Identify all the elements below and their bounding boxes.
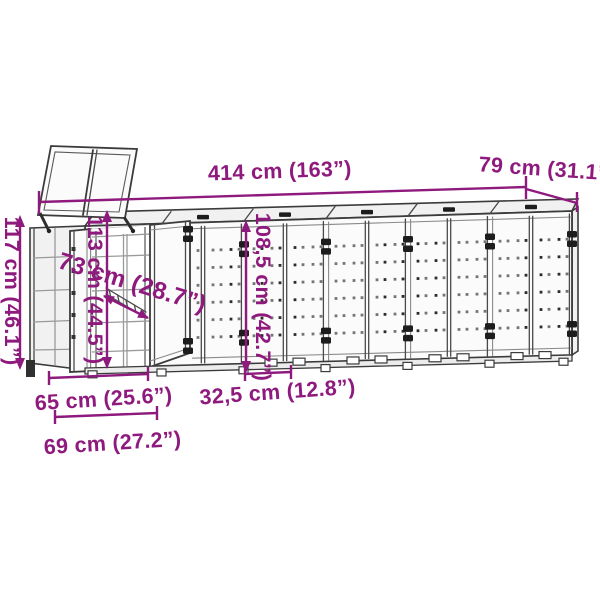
perforation-dot	[384, 296, 387, 299]
perforation-dot	[443, 276, 446, 279]
dim-label-depth: 79 cm (31.1”)	[478, 152, 600, 186]
perforation-dot	[220, 266, 223, 269]
perforation-dot	[484, 240, 487, 243]
perforation-dot	[294, 316, 297, 319]
perforation-dot	[484, 258, 487, 261]
perforation-dot	[343, 262, 346, 265]
perforation-dot	[312, 280, 315, 283]
perforation-dot	[525, 309, 528, 312]
perforation-dot	[312, 263, 315, 266]
perforation-dot	[212, 336, 215, 339]
perforation-dot	[435, 242, 438, 245]
perforation-dot	[466, 293, 469, 296]
perforation-dot	[312, 333, 315, 336]
perforation-dot	[230, 318, 233, 321]
perforation-dot	[230, 283, 233, 286]
perforation-dot	[279, 264, 282, 267]
hinge-block	[239, 330, 249, 337]
perforation-dot	[443, 259, 446, 262]
dim-door-width: 32,5 cm (12.8”)	[199, 365, 357, 409]
perforation-dot	[376, 261, 379, 264]
perforation-dot	[230, 248, 233, 251]
hinge-block	[403, 335, 413, 342]
hinge-block	[403, 325, 413, 332]
perforation-dot	[212, 266, 215, 269]
perforation-dot	[499, 327, 502, 330]
perforation-dot	[353, 314, 356, 317]
dim-total-height: 117 cm (46.1”)	[0, 215, 25, 370]
perforation-dot	[548, 308, 551, 311]
perforation-dot	[302, 333, 305, 336]
latch	[539, 352, 551, 359]
perforation-dot	[443, 311, 446, 314]
perforation-dot	[384, 243, 387, 246]
perforation-dot	[302, 246, 305, 249]
perforation-dot	[294, 298, 297, 301]
perforation-dot	[525, 239, 528, 242]
latch	[457, 354, 469, 361]
perforation-dot	[417, 277, 420, 280]
dim-label-door-width: 32,5 cm (12.8”)	[199, 375, 357, 410]
perforation-dot	[320, 315, 323, 318]
dim-label-interior-height: 113 cm (44.5”)	[83, 216, 107, 365]
perforation-dot	[425, 294, 428, 297]
perforation-dot	[302, 315, 305, 318]
perforation-dot	[343, 314, 346, 317]
perforation-dot	[343, 297, 346, 300]
dim-label-total-width: 414 cm (163”)	[208, 157, 352, 186]
hinge-block	[403, 236, 413, 243]
lid-hinge-mark	[443, 207, 455, 212]
perforation-dot	[402, 312, 405, 315]
perforation-dot	[402, 243, 405, 246]
perforation-dot	[425, 259, 428, 262]
perforation-dot	[294, 333, 297, 336]
hinge-block	[485, 333, 495, 340]
perforation-dot	[548, 325, 551, 328]
perforation-dot	[394, 295, 397, 298]
perforation-dot	[302, 298, 305, 301]
lid-hinge-mark	[525, 205, 537, 210]
perforation-dot	[238, 300, 241, 303]
latch	[375, 356, 387, 363]
perforation-dot	[335, 297, 338, 300]
dim-interior-height: 113 cm (44.5”)	[83, 210, 112, 369]
perforation-dot	[517, 326, 520, 329]
bin-storage-dimension-diagram: 414 cm (163”) 79 cm (31.1”) 117 cm (46.1…	[0, 0, 600, 600]
dim-door-height: 108,5 cm (42.7”)	[241, 213, 275, 382]
perforation-dot	[279, 247, 282, 250]
perforation-dot	[435, 311, 438, 314]
perforation-dot	[353, 331, 356, 334]
perforation-dot	[230, 335, 233, 338]
dim-module-width: 69 cm (27.2”)	[43, 406, 182, 459]
perforation-dot	[197, 336, 200, 339]
perforation-dot	[525, 274, 528, 277]
perforation-dot	[558, 325, 561, 328]
perforation-dot	[384, 313, 387, 316]
perforation-dot	[540, 291, 543, 294]
perforation-dot	[320, 263, 323, 266]
perforation-dot	[566, 307, 569, 310]
perforation-dot	[417, 242, 420, 245]
hinge-block	[321, 248, 331, 255]
lid-pivot	[47, 229, 51, 233]
hinge-block	[403, 246, 413, 253]
hinge-block	[485, 323, 495, 330]
perforation-dot	[499, 275, 502, 278]
latch	[511, 353, 523, 360]
perforation-dot	[466, 258, 469, 261]
perforation-dot	[525, 291, 528, 294]
corner-foot	[26, 360, 35, 377]
perforation-dot	[361, 279, 364, 282]
perforation-dot	[212, 301, 215, 304]
perforation-dot	[517, 257, 520, 260]
foot	[157, 369, 166, 376]
hinge-block	[321, 337, 331, 344]
perforation-dot	[476, 258, 479, 261]
perforation-dot	[294, 246, 297, 249]
perforation-dot	[335, 314, 338, 317]
perforation-dot	[312, 298, 315, 301]
perforation-dot	[476, 310, 479, 313]
perforation-dot	[417, 260, 420, 263]
perforation-dot	[484, 275, 487, 278]
perforation-dot	[507, 327, 510, 330]
perforation-dot	[197, 284, 200, 287]
perforation-dot	[558, 290, 561, 293]
perforation-dot	[458, 276, 461, 279]
perforation-dot	[197, 249, 200, 252]
hinge-knuckle	[72, 291, 76, 295]
perforation-dot	[220, 248, 223, 251]
hinge-block	[567, 241, 577, 248]
perforation-dot	[220, 318, 223, 321]
perforation-dot	[230, 266, 233, 269]
hinge-block	[239, 339, 249, 346]
latch	[347, 357, 359, 364]
perforation-dot	[353, 297, 356, 300]
diagram-canvas: 414 cm (163”) 79 cm (31.1”) 117 cm (46.1…	[0, 0, 600, 600]
perforation-dot	[558, 238, 561, 241]
perforation-dot	[343, 332, 346, 335]
hinge-block	[567, 231, 577, 238]
perforation-dot	[394, 260, 397, 263]
perforation-dot	[376, 296, 379, 299]
hinge-knuckle	[72, 313, 76, 317]
hinge-block	[485, 234, 495, 241]
perforation-dot	[540, 256, 543, 259]
perforation-dot	[394, 313, 397, 316]
perforation-dot	[238, 317, 241, 320]
perforation-dot	[353, 262, 356, 265]
perforation-dot	[517, 309, 520, 312]
perforation-dot	[540, 273, 543, 276]
perforation-dot	[279, 281, 282, 284]
hinge-block	[321, 239, 331, 246]
perforation-dot	[443, 294, 446, 297]
perforation-dot	[517, 274, 520, 277]
perforation-dot	[476, 241, 479, 244]
perforation-dot	[499, 257, 502, 260]
perforation-dot	[517, 291, 520, 294]
perforation-dot	[361, 331, 364, 334]
perforation-dot	[476, 328, 479, 331]
perforation-dot	[566, 255, 569, 258]
latch	[293, 358, 305, 365]
perforation-dot	[353, 279, 356, 282]
perforation-dot	[361, 314, 364, 317]
perforation-dot	[220, 335, 223, 338]
perforation-dot	[517, 239, 520, 242]
perforation-dot	[343, 279, 346, 282]
hinge-block	[183, 348, 193, 355]
hinge-block	[239, 251, 249, 257]
perforation-dot	[361, 244, 364, 247]
perforation-dot	[212, 318, 215, 321]
perforation-dot	[466, 241, 469, 244]
perforation-dot	[507, 240, 510, 243]
perforation-dot	[335, 280, 338, 283]
perforation-dot	[384, 261, 387, 264]
foot	[403, 362, 412, 369]
perforation-dot	[394, 243, 397, 246]
foot	[559, 358, 568, 365]
perforation-dot	[376, 331, 379, 334]
perforation-dot	[558, 308, 561, 311]
perforation-dot	[402, 278, 405, 281]
perforation-dot	[312, 315, 315, 318]
perforation-dot	[548, 273, 551, 276]
perforation-dot	[466, 310, 469, 313]
perforation-dot	[425, 329, 428, 332]
perforation-dot	[220, 301, 223, 304]
dim-label-total-height: 117 cm (46.1”)	[0, 217, 24, 366]
perforation-dot	[476, 275, 479, 278]
perforation-dot	[238, 283, 241, 286]
perforation-dot	[499, 240, 502, 243]
perforation-dot	[384, 278, 387, 281]
perforation-dot	[507, 292, 510, 295]
perforation-dot	[540, 308, 543, 311]
perforation-dot	[548, 238, 551, 241]
perforation-dot	[458, 241, 461, 244]
perforation-dot	[402, 295, 405, 298]
perforation-dot	[197, 267, 200, 270]
perforation-dot	[458, 311, 461, 314]
lid-hinge-mark	[197, 215, 209, 220]
perforation-dot	[548, 256, 551, 259]
perforation-dot	[394, 330, 397, 333]
perforation-dot	[566, 238, 569, 241]
perforation-dot	[558, 273, 561, 276]
perforation-dot	[353, 244, 356, 247]
perforation-dot	[417, 295, 420, 298]
hinge-knuckle	[72, 335, 76, 339]
perforation-dot	[335, 332, 338, 335]
perforation-dot	[279, 316, 282, 319]
hinge-block	[183, 226, 193, 233]
perforation-dot	[376, 244, 379, 247]
perforation-dot	[402, 260, 405, 263]
perforation-dot	[335, 262, 338, 265]
dim-label-door-height: 108,5 cm (42.7”)	[251, 213, 275, 382]
perforation-dot	[458, 293, 461, 296]
hinge-block	[485, 243, 495, 250]
perforation-dot	[417, 312, 420, 315]
perforation-dot	[435, 277, 438, 280]
perforation-dot	[417, 329, 420, 332]
perforation-dot	[507, 309, 510, 312]
perforation-dot	[507, 257, 510, 260]
perforation-dot	[279, 299, 282, 302]
perforation-dot	[238, 265, 241, 268]
hinge-block	[183, 236, 193, 243]
perforation-dot	[558, 255, 561, 258]
perforation-dot	[212, 283, 215, 286]
perforation-dot	[566, 273, 569, 276]
foot	[321, 365, 330, 372]
perforation-dot	[376, 278, 379, 281]
perforation-dot	[425, 312, 428, 315]
perforation-dot	[443, 329, 446, 332]
perforation-dot	[525, 326, 528, 329]
perforation-dot	[312, 246, 315, 249]
perforation-dot	[361, 296, 364, 299]
perforation-dot	[525, 256, 528, 259]
perforation-dot	[476, 293, 479, 296]
dim-label-module-width: 69 cm (27.2”)	[43, 427, 182, 459]
perforation-dot	[435, 259, 438, 262]
perforation-dot	[294, 281, 297, 284]
perforation-dot	[320, 298, 323, 301]
perforation-dot	[302, 281, 305, 284]
hinge-block	[567, 321, 577, 328]
perforation-dot	[238, 248, 241, 251]
perforation-dot	[320, 245, 323, 248]
perforation-dot	[425, 242, 428, 245]
perforation-dot	[566, 290, 569, 293]
perforation-dot	[220, 283, 223, 286]
perforation-dot	[335, 245, 338, 248]
perforation-dot	[484, 310, 487, 313]
perforation-dot	[320, 280, 323, 283]
perforation-dot	[279, 334, 282, 337]
perforation-dot	[197, 319, 200, 322]
perforation-dot	[212, 249, 215, 252]
perforation-dot	[394, 278, 397, 281]
perforation-dot	[343, 245, 346, 248]
perforation-dot	[507, 274, 510, 277]
hinge-block	[567, 330, 577, 337]
hinge-block	[183, 338, 193, 345]
perforation-dot	[458, 258, 461, 261]
perforation-dot	[484, 292, 487, 295]
perforation-dot	[458, 328, 461, 331]
hinge-block	[239, 241, 249, 248]
lid-hinge-mark	[361, 210, 373, 215]
perforation-dot	[230, 300, 233, 303]
perforation-dot	[540, 326, 543, 329]
perforation-dot	[384, 330, 387, 333]
perforation-dot	[294, 264, 297, 267]
perforation-dot	[435, 294, 438, 297]
hinge-block	[321, 328, 331, 335]
perforation-dot	[466, 328, 469, 331]
perforation-dot	[443, 242, 446, 245]
perforation-dot	[361, 261, 364, 264]
perforation-dot	[302, 263, 305, 266]
perforation-dot	[425, 277, 428, 280]
foot	[485, 360, 494, 367]
dim-opening-width: 65 cm (25.6”)	[34, 367, 173, 415]
perforation-dot	[499, 292, 502, 295]
perforation-dot	[499, 309, 502, 312]
perforation-dot	[376, 313, 379, 316]
lid-hinge-mark	[279, 212, 291, 217]
perforation-dot	[435, 329, 438, 332]
perforation-dot	[466, 276, 469, 279]
lid-pivot	[131, 229, 135, 233]
perforation-dot	[548, 291, 551, 294]
latch	[429, 355, 441, 362]
perforation-dot	[540, 239, 543, 242]
